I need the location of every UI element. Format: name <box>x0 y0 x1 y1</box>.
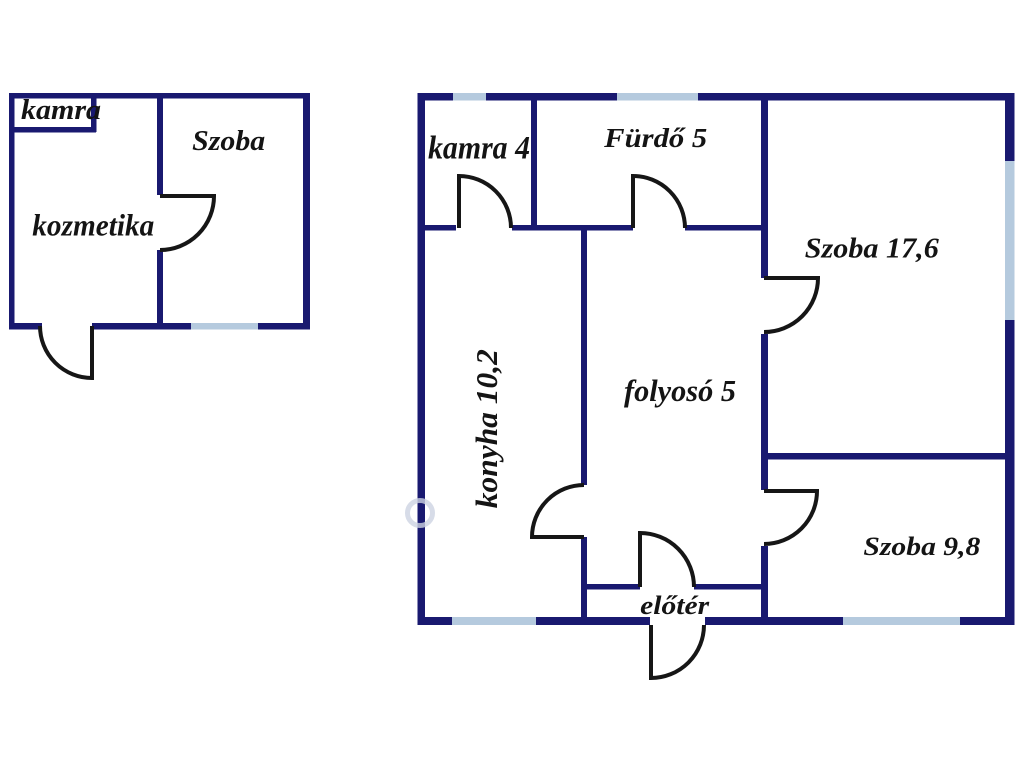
svg-text:kamra 4: kamra 4 <box>428 131 530 167</box>
svg-text:kozmetika: kozmetika <box>32 208 154 243</box>
svg-text:Szoba 17,6: Szoba 17,6 <box>805 233 940 265</box>
svg-text:Szoba 9,8: Szoba 9,8 <box>863 531 980 561</box>
svg-text:előtér: előtér <box>640 591 710 620</box>
svg-text:Fürdő 5: Fürdő 5 <box>603 122 707 153</box>
svg-text:folyosó 5: folyosó 5 <box>624 373 736 408</box>
svg-text:Szoba: Szoba <box>192 125 265 157</box>
svg-text:konyha 10,2: konyha 10,2 <box>469 349 504 508</box>
svg-text:kamra: kamra <box>21 95 101 126</box>
